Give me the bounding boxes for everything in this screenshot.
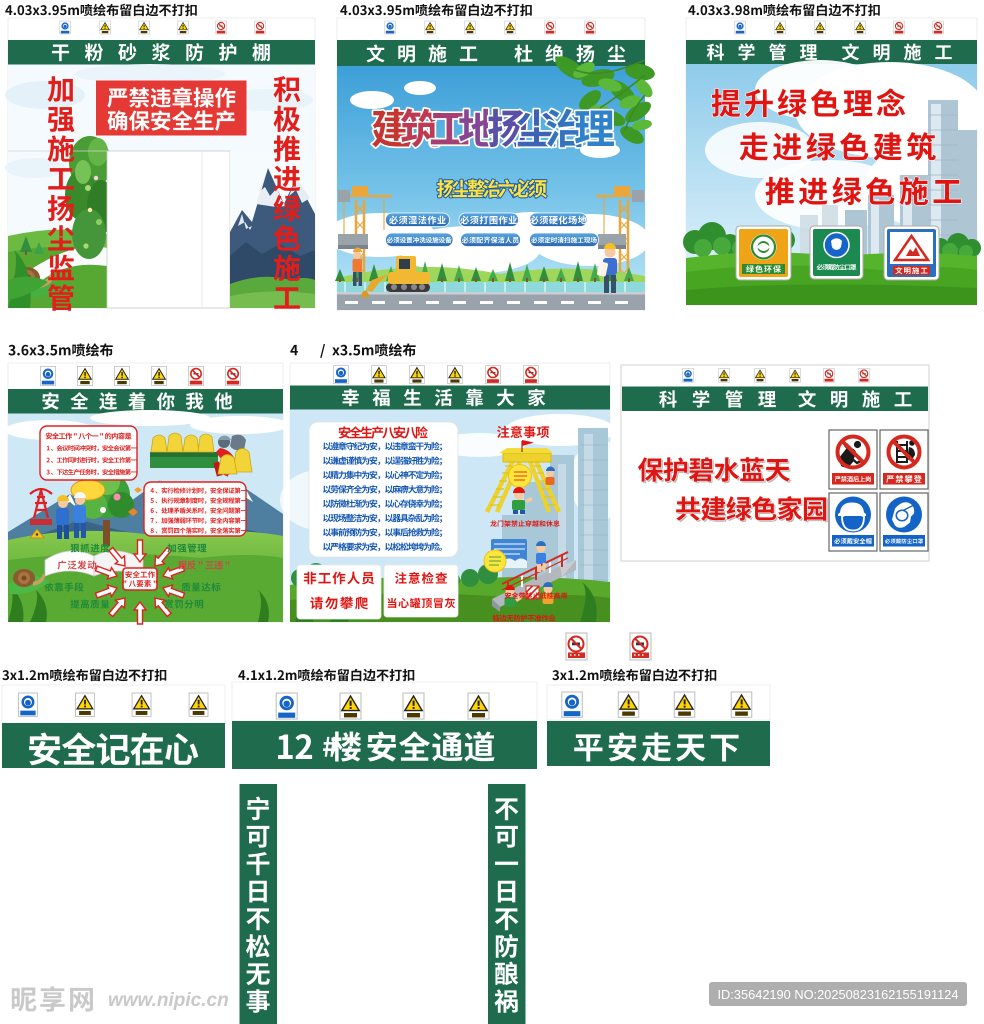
svg-text:ID:35642190 NO:202508231621551: ID:35642190 NO:20250823162155191124 — [718, 987, 959, 1002]
svg-text:www.nipic.cn: www.nipic.cn — [108, 990, 229, 1011]
